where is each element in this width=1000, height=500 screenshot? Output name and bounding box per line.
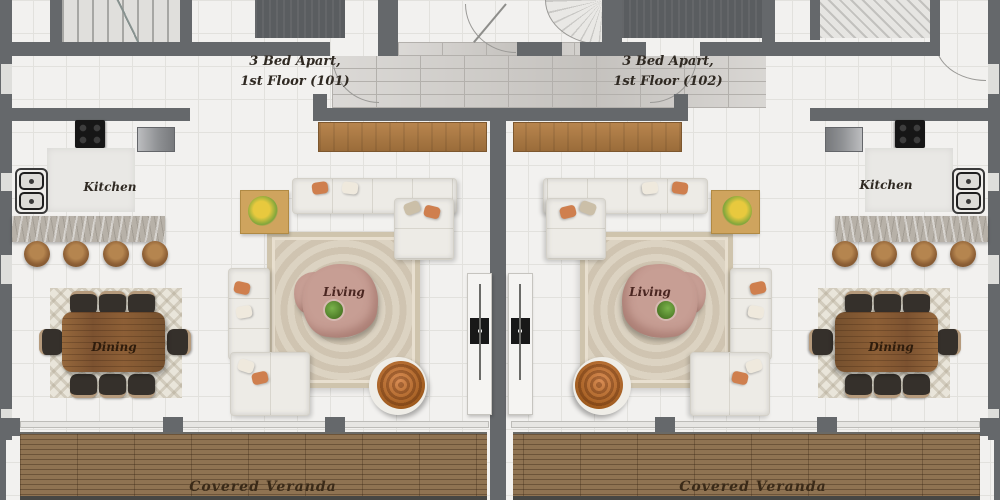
pillow bbox=[311, 181, 329, 195]
veranda-label-102: Covered Veranda bbox=[679, 479, 826, 495]
pillow bbox=[671, 181, 689, 195]
living-label-102: Living bbox=[629, 285, 671, 299]
tv-console bbox=[513, 122, 682, 152]
pillow bbox=[341, 181, 358, 195]
unit-101-title: 3 Bed Apart, 1st Floor (101) bbox=[195, 52, 395, 91]
oven-cell bbox=[956, 192, 981, 210]
window-icon bbox=[1, 255, 12, 284]
house-plant-icon bbox=[325, 301, 343, 319]
outer-wall-right bbox=[994, 440, 1000, 500]
veranda-pillar bbox=[655, 417, 675, 435]
living-label-101: Living bbox=[323, 285, 365, 299]
breakfast-bar bbox=[12, 216, 165, 242]
flower-icon bbox=[248, 196, 278, 226]
unit-102-title-line2: 1st Floor (102) bbox=[568, 72, 768, 92]
window-icon bbox=[1, 64, 12, 94]
dining-chair-icon bbox=[99, 374, 126, 398]
dining-chair-icon bbox=[874, 374, 901, 398]
orange-armchair bbox=[575, 361, 623, 409]
floor-plan: 3 Bed Apart, 1st Floor (101) 3 Bed Apart… bbox=[0, 0, 1000, 500]
unit-101-title-line2: 1st Floor (101) bbox=[195, 72, 395, 92]
orange-armchair bbox=[377, 361, 425, 409]
veranda-pillar bbox=[163, 417, 183, 435]
bar-stool-icon bbox=[63, 241, 89, 267]
cabinet-handle bbox=[520, 284, 522, 380]
bar-stool-icon bbox=[24, 241, 50, 267]
bar-stool-icon bbox=[871, 241, 897, 267]
window-icon bbox=[988, 255, 999, 284]
oven-cell bbox=[956, 172, 981, 190]
storage-cabinet bbox=[467, 273, 492, 415]
dining-chair-icon bbox=[167, 329, 191, 355]
dining-label-102: Dining bbox=[868, 340, 913, 354]
flower-icon bbox=[722, 196, 752, 226]
double-oven-icon bbox=[15, 168, 48, 214]
window-icon bbox=[1, 173, 12, 191]
bar-stool-icon bbox=[911, 241, 937, 267]
cooktop-icon bbox=[895, 120, 925, 148]
cabinet-handle bbox=[479, 284, 481, 380]
storage-cabinet bbox=[508, 273, 533, 415]
kitchen-label-101: Kitchen bbox=[84, 180, 137, 194]
chaise-sofa bbox=[546, 198, 606, 260]
tv-console bbox=[318, 122, 487, 152]
bar-stool-icon bbox=[950, 241, 976, 267]
unit-102-title: 3 Bed Apart, 1st Floor (102) bbox=[568, 52, 768, 91]
pillow bbox=[641, 181, 658, 195]
dining-chair-icon bbox=[39, 329, 63, 355]
veranda-pillar bbox=[325, 417, 345, 435]
bar-stool-icon bbox=[832, 241, 858, 267]
dining-chair-icon bbox=[128, 374, 155, 398]
refrigerator-icon bbox=[825, 127, 863, 152]
pillow bbox=[747, 305, 765, 320]
dining-chair-icon bbox=[809, 329, 833, 355]
unit-102-title-line1: 3 Bed Apart, bbox=[568, 52, 768, 72]
breakfast-bar bbox=[835, 216, 988, 242]
cooktop-icon bbox=[75, 120, 105, 148]
sliding-door-track bbox=[511, 421, 980, 428]
sliding-door-track bbox=[20, 421, 489, 428]
bar-stool-icon bbox=[103, 241, 129, 267]
oven-cell bbox=[19, 192, 44, 210]
kitchen-label-102: Kitchen bbox=[860, 178, 913, 192]
veranda-label-101: Covered Veranda bbox=[189, 479, 336, 495]
unit-101-title-line1: 3 Bed Apart, bbox=[195, 52, 395, 72]
dining-label-101: Dining bbox=[91, 340, 136, 354]
refrigerator-icon bbox=[137, 127, 175, 152]
bar-stool-icon bbox=[142, 241, 168, 267]
window-icon bbox=[988, 173, 999, 191]
dining-chair-icon bbox=[70, 374, 97, 398]
double-oven-icon bbox=[952, 168, 985, 214]
dining-chair-icon bbox=[903, 374, 930, 398]
window-icon bbox=[988, 64, 999, 94]
dining-chair-icon bbox=[937, 329, 961, 355]
veranda-pillar bbox=[817, 417, 837, 435]
oven-cell bbox=[19, 172, 44, 190]
dining-chair-icon bbox=[845, 374, 872, 398]
house-plant-icon bbox=[657, 301, 675, 319]
outer-wall-left bbox=[0, 440, 6, 500]
